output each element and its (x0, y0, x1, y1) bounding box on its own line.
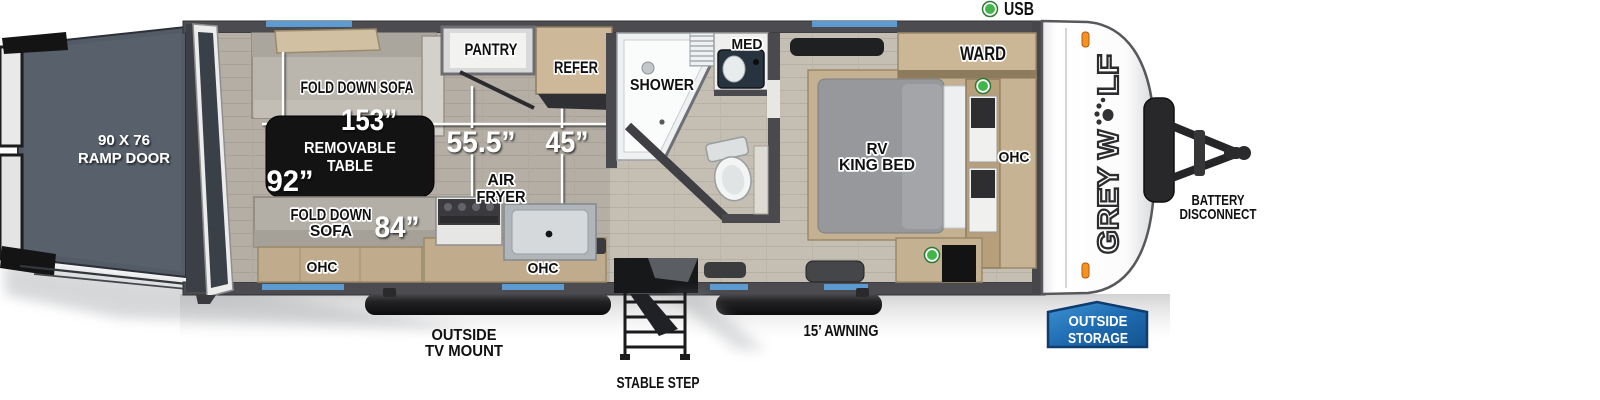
svg-text:84”: 84” (375, 211, 420, 244)
svg-text:TABLE: TABLE (327, 158, 373, 175)
svg-text:OHC: OHC (999, 149, 1030, 166)
svg-text:MED: MED (732, 36, 763, 53)
svg-text:LF: LF (1093, 54, 1125, 96)
svg-text:TV MOUNT: TV MOUNT (425, 343, 503, 360)
svg-text:RV: RV (867, 141, 888, 158)
svg-text:55.5”: 55.5” (447, 126, 516, 159)
svg-text:45”: 45” (546, 126, 589, 159)
svg-text:OUTSIDE: OUTSIDE (1069, 313, 1128, 330)
svg-text:USB: USB (1004, 0, 1034, 19)
svg-text:KING BED: KING BED (839, 157, 915, 174)
svg-text:OHC: OHC (307, 259, 338, 276)
svg-text:90 X 76: 90 X 76 (98, 132, 150, 149)
svg-text:REFER: REFER (554, 58, 598, 77)
svg-text:PANTRY: PANTRY (465, 40, 519, 59)
svg-text:OHC: OHC (528, 260, 559, 277)
svg-text:STORAGE: STORAGE (1068, 330, 1128, 347)
svg-text:FRYER: FRYER (477, 189, 526, 206)
svg-text:WARD: WARD (960, 44, 1006, 65)
svg-text:RAMP DOOR: RAMP DOOR (78, 150, 170, 167)
svg-text:REMOVABLE: REMOVABLE (304, 140, 396, 157)
svg-text:FOLD DOWN SOFA: FOLD DOWN SOFA (301, 78, 414, 97)
svg-text:DISCONNECT: DISCONNECT (1180, 206, 1257, 223)
svg-text:FOLD DOWN: FOLD DOWN (291, 207, 372, 224)
svg-text:SOFA: SOFA (310, 223, 352, 240)
svg-text:153”: 153” (341, 104, 397, 137)
svg-text:SHOWER: SHOWER (630, 77, 694, 94)
svg-text:15’ AWNING: 15’ AWNING (804, 323, 879, 340)
svg-text:92”: 92” (267, 165, 314, 198)
svg-text:AIR: AIR (488, 172, 515, 189)
svg-text:GREY W: GREY W (1093, 129, 1125, 254)
svg-text:OUTSIDE: OUTSIDE (432, 327, 497, 344)
svg-text:STABLE STEP: STABLE STEP (617, 375, 700, 392)
